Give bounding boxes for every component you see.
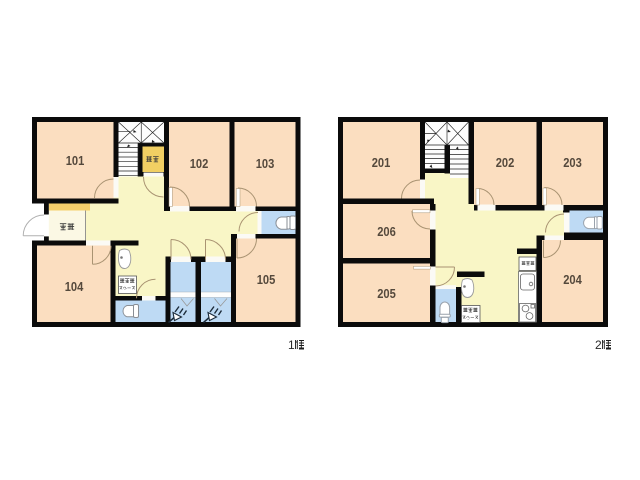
svg-text:2: 2 bbox=[595, 338, 602, 352]
svg-text:202: 202 bbox=[496, 155, 515, 170]
svg-text:204: 204 bbox=[563, 272, 582, 287]
svg-text:102: 102 bbox=[190, 156, 209, 171]
svg-text:203: 203 bbox=[563, 155, 582, 170]
svg-text:205: 205 bbox=[377, 286, 396, 301]
svg-text:1: 1 bbox=[288, 338, 295, 352]
svg-text:103: 103 bbox=[256, 156, 275, 171]
svg-text:206: 206 bbox=[377, 224, 396, 239]
svg-text:104: 104 bbox=[65, 279, 84, 294]
svg-text:201: 201 bbox=[372, 155, 391, 170]
svg-text:105: 105 bbox=[257, 272, 276, 287]
svg-text:101: 101 bbox=[66, 153, 85, 168]
